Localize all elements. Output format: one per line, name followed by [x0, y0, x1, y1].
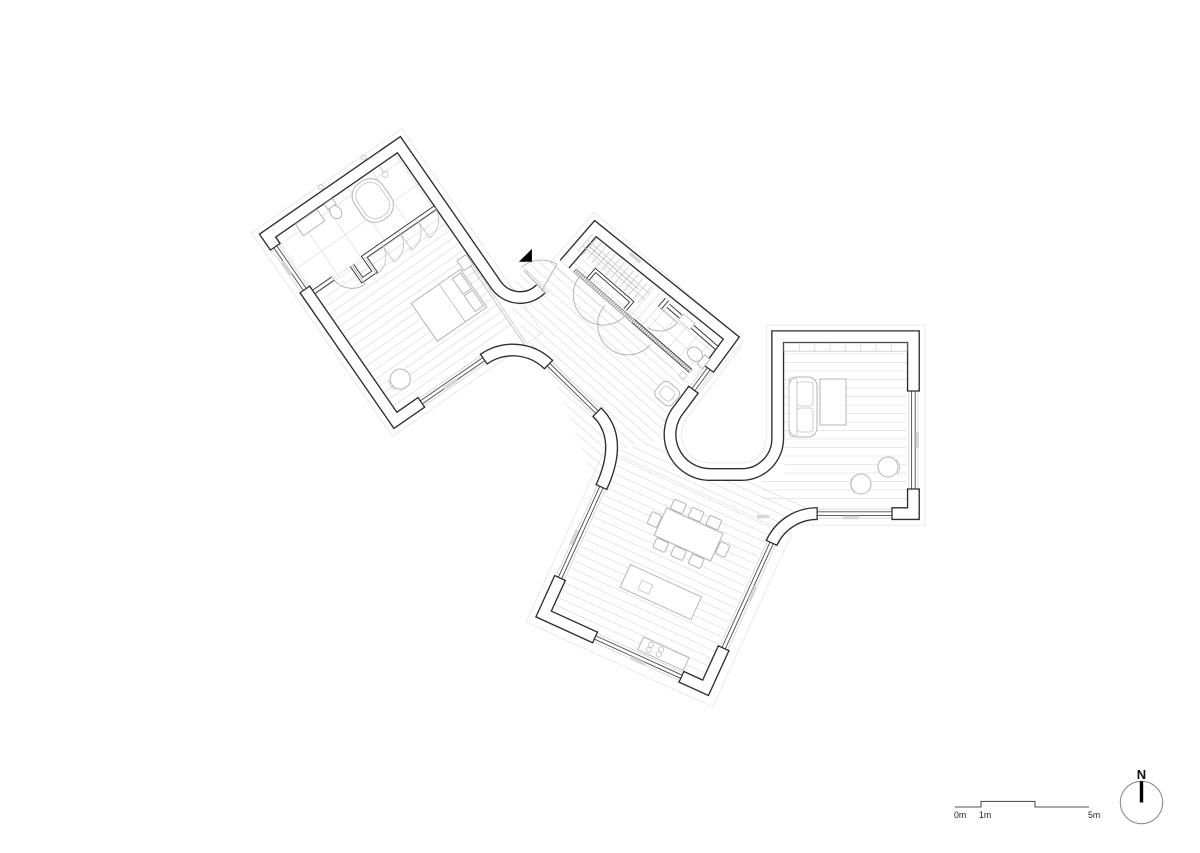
svg-text:5m: 5m: [1088, 810, 1100, 820]
svg-text:0m: 0m: [954, 810, 966, 820]
svg-text:1m: 1m: [979, 810, 991, 820]
svg-text:N: N: [1137, 767, 1146, 782]
